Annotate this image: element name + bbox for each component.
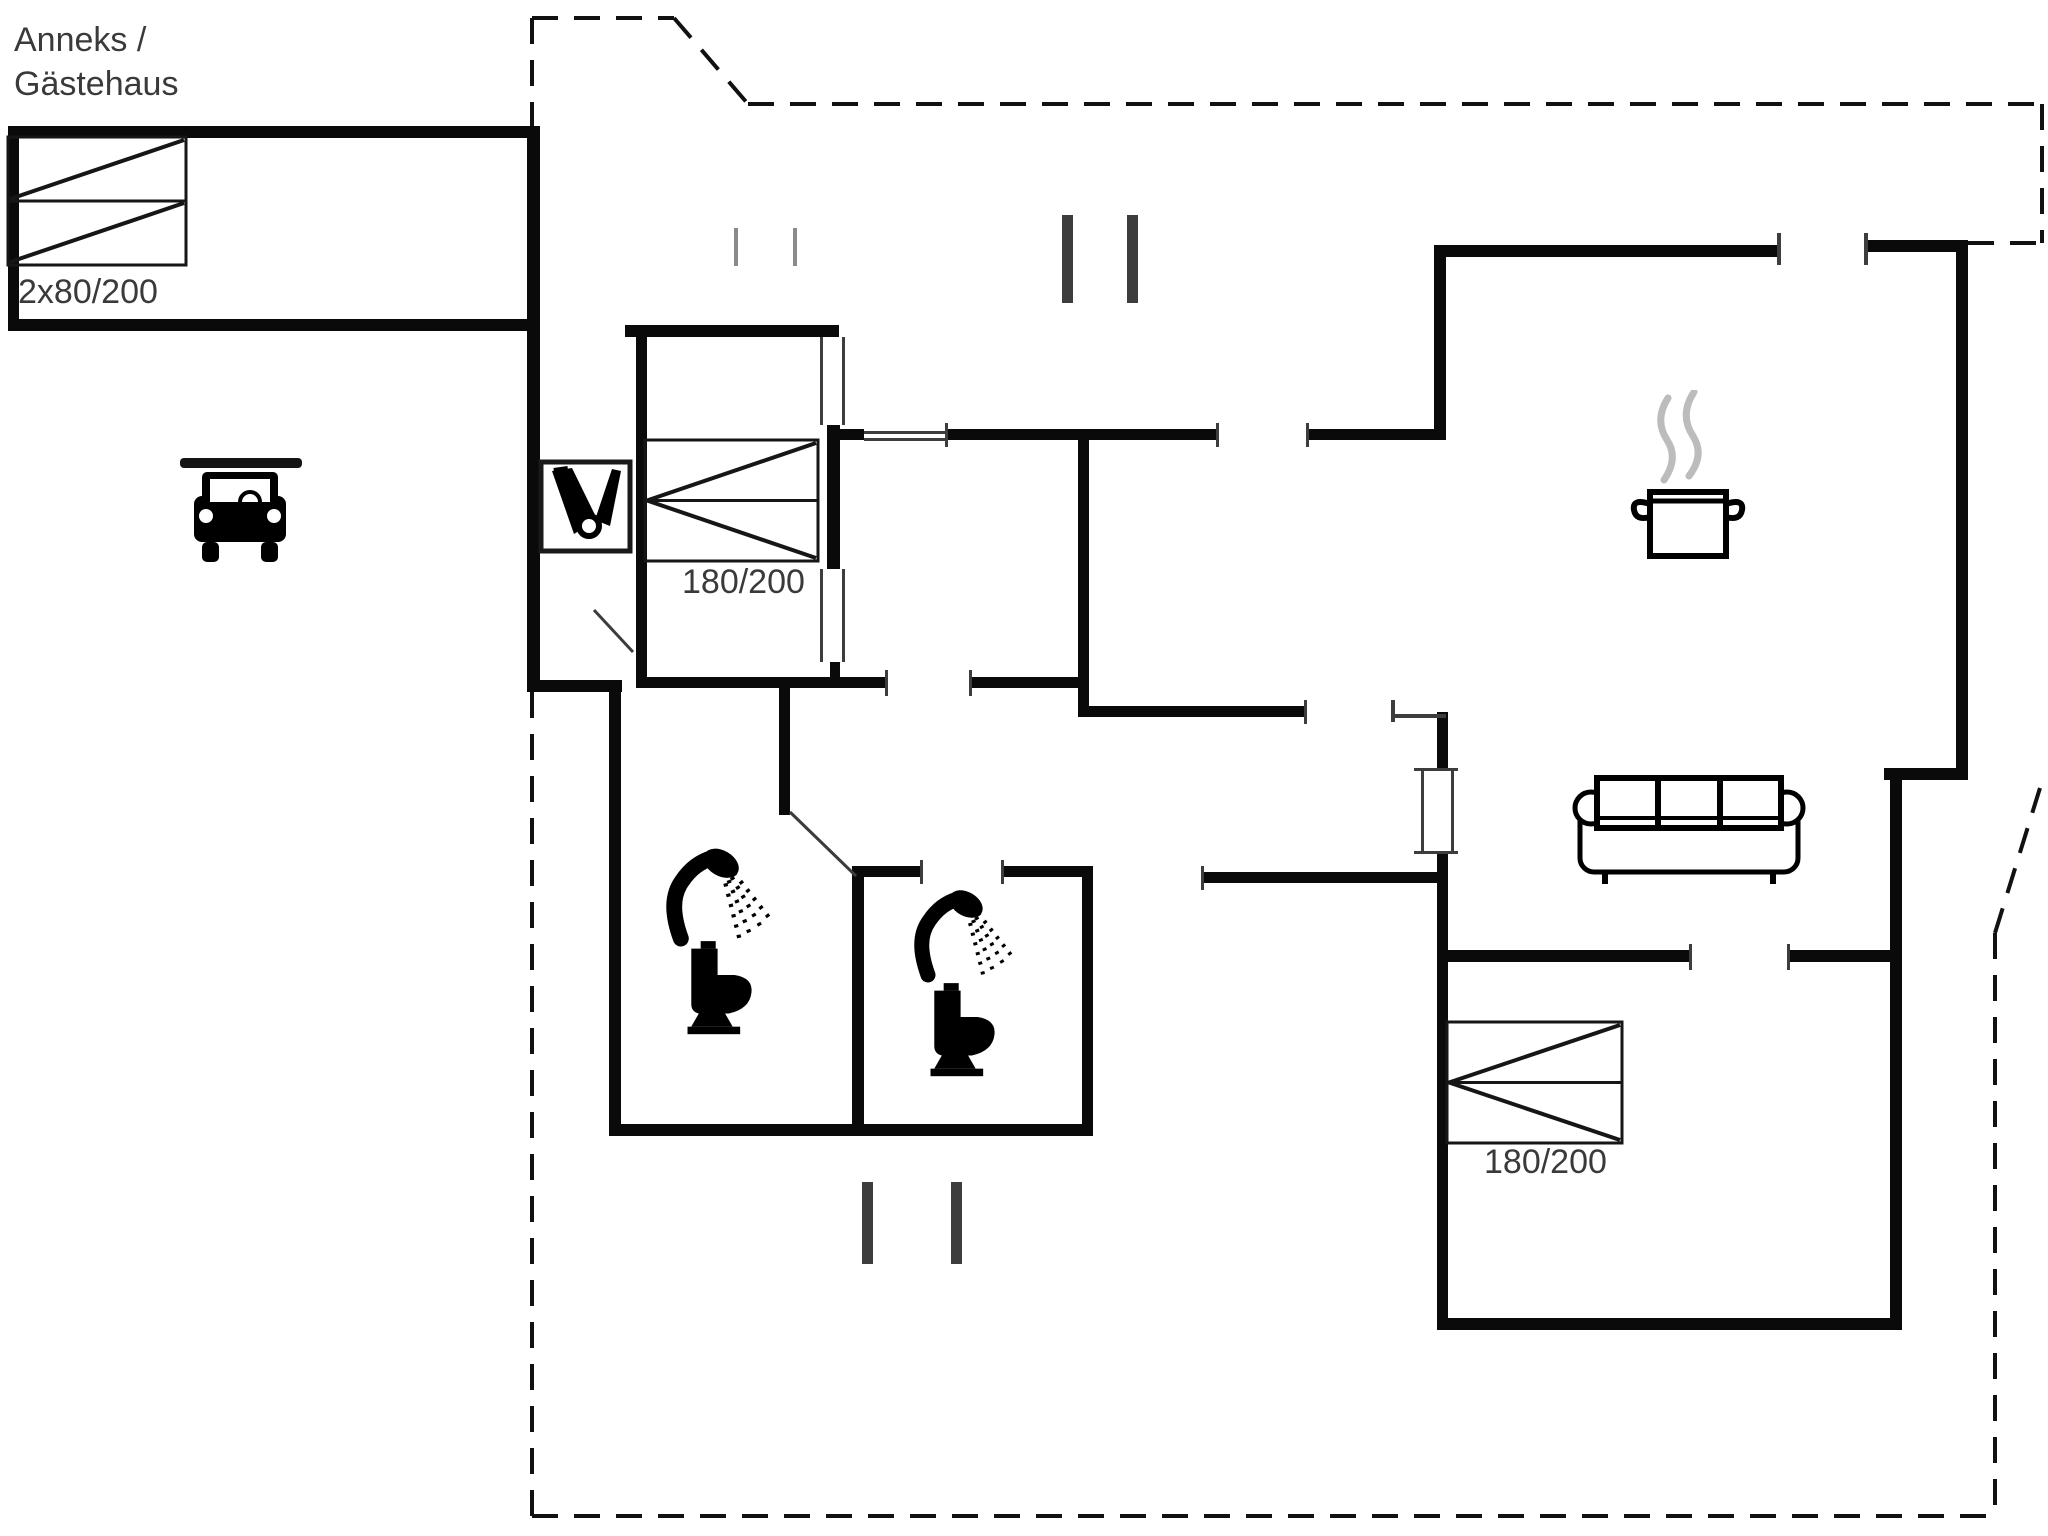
window-or-post-mark [969, 670, 972, 696]
window-or-post-mark [945, 423, 948, 447]
bed1-size-label: 180/200 [682, 564, 805, 601]
window-or-post-mark [1201, 866, 1204, 890]
wall [1434, 245, 1446, 440]
wall [779, 688, 790, 815]
window-or-post-mark [820, 569, 823, 662]
wall [852, 872, 864, 1130]
window-or-post-mark [842, 569, 845, 662]
wall [641, 677, 888, 688]
wall [838, 429, 864, 440]
wall [1956, 240, 1968, 780]
cleaning-supplies-icon [538, 459, 633, 554]
wall [1078, 429, 1089, 717]
window-or-post-mark [734, 228, 738, 266]
wall [827, 425, 840, 569]
bed-diagonal [1449, 1083, 1620, 1141]
annex-bed-size-label: 2x80/200 [18, 274, 158, 311]
sofa-icon [1570, 768, 1808, 890]
wall [609, 1124, 1093, 1136]
window-or-post-mark [1391, 700, 1395, 722]
wall [972, 677, 1084, 688]
cooking-pot-icon [1626, 390, 1748, 572]
wall [852, 866, 922, 877]
wall [1437, 712, 1448, 770]
bunk-diagonal [10, 140, 184, 199]
window-or-post-mark [1414, 851, 1458, 854]
window-or-post-mark [1787, 944, 1790, 970]
wall [8, 319, 540, 331]
window-or-post-mark [920, 860, 923, 884]
wall [1078, 706, 1306, 717]
window-or-post-mark [1127, 215, 1138, 303]
bed-diagonal [1449, 1025, 1620, 1083]
window-or-post-mark [1216, 423, 1219, 447]
window-or-post-mark [862, 1182, 873, 1264]
wall [1890, 768, 1902, 1330]
window-or-post-mark [1414, 768, 1458, 771]
wall [1082, 866, 1093, 1130]
annex-label: Anneks / [14, 22, 146, 59]
window-or-post-mark [1001, 860, 1004, 884]
window-or-post-mark [864, 431, 947, 434]
window-or-post-mark [1864, 233, 1868, 265]
shower-icon [914, 883, 1014, 983]
shower-icon [666, 841, 772, 947]
window-or-post-mark [1306, 423, 1309, 447]
window-or-post-mark [793, 228, 797, 266]
bed-diagonal [647, 501, 816, 559]
wall [609, 680, 621, 1136]
bed-diagonal [647, 443, 816, 501]
wall [1790, 950, 1902, 962]
wall [1308, 429, 1446, 440]
bed2-size-label: 180/200 [1484, 1144, 1607, 1181]
wall [527, 126, 540, 692]
window-or-post-mark [1062, 215, 1073, 303]
window-or-post-mark [820, 337, 823, 425]
wall [1434, 245, 1780, 257]
wall [1866, 240, 1968, 252]
window-or-post-mark [1304, 700, 1307, 724]
door-swing-line [790, 812, 856, 876]
toilet-icon [680, 938, 774, 1042]
window-or-post-mark [1777, 233, 1781, 265]
wall [830, 662, 840, 688]
window-or-post-mark [842, 337, 845, 425]
window-or-post-mark [1391, 714, 1446, 718]
wall [1004, 866, 1093, 877]
window-or-post-mark [1421, 770, 1424, 853]
wall [527, 680, 622, 692]
wall [1437, 1318, 1902, 1330]
window-or-post-mark [1451, 770, 1454, 853]
toilet-icon [923, 980, 1017, 1084]
wall [625, 325, 839, 337]
wall [1437, 950, 1692, 962]
window-or-post-mark [1689, 944, 1692, 970]
annex-label-line2: Gästehaus [14, 66, 178, 103]
boundary-dashed-line [1995, 788, 2040, 933]
window-or-post-mark [885, 670, 888, 696]
car-icon [178, 452, 308, 574]
window-or-post-mark [864, 438, 947, 441]
door-swing-line [594, 610, 633, 652]
boundary-dashed-line [674, 18, 748, 104]
window-or-post-mark [951, 1182, 962, 1264]
bunk-diagonal [10, 203, 184, 262]
wall [1203, 872, 1443, 883]
floor-plan: Anneks / Gästehaus 2x80/200 180/200 180/… [0, 0, 2048, 1536]
